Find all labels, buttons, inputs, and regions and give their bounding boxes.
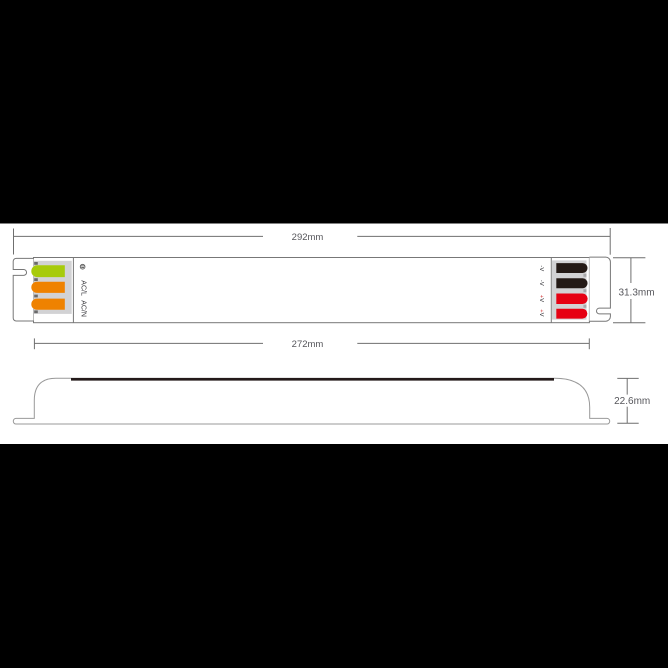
- svg-text:272mm: 272mm: [292, 339, 324, 350]
- svg-text:-V: -V: [538, 265, 544, 271]
- svg-text:AC/N: AC/N: [79, 300, 86, 317]
- svg-text:31.3mm: 31.3mm: [618, 288, 654, 299]
- svg-text:AC/L: AC/L: [79, 280, 86, 296]
- svg-text:+V: +V: [538, 309, 544, 316]
- svg-text:22.6mm: 22.6mm: [614, 396, 650, 407]
- svg-text:292mm: 292mm: [292, 232, 324, 243]
- svg-text:-V: -V: [538, 280, 544, 286]
- svg-text:+V: +V: [538, 295, 544, 302]
